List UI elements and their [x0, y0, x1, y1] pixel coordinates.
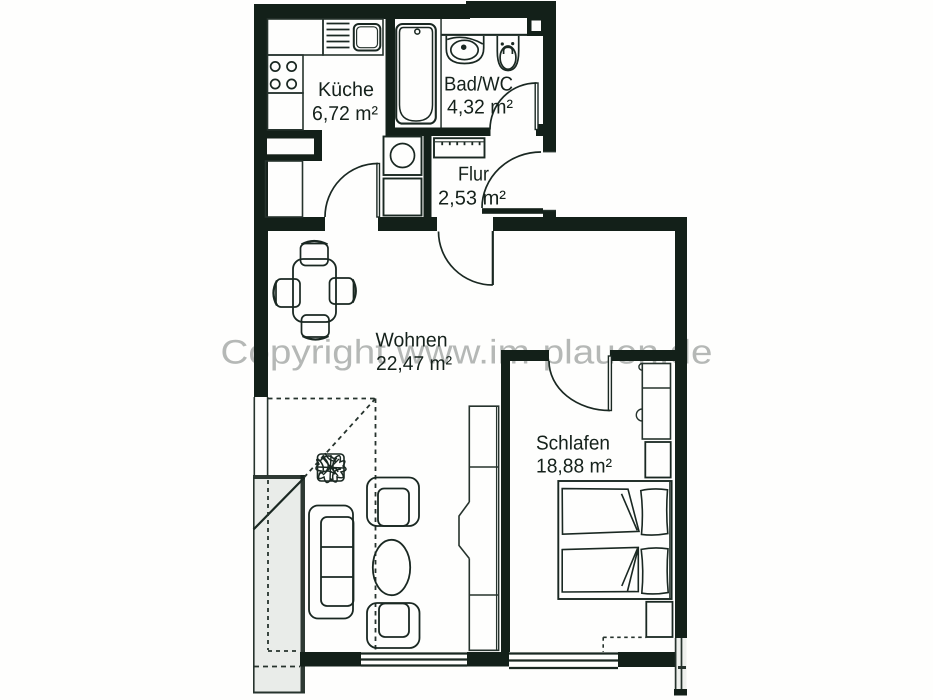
svg-text:Bad/WC: Bad/WC: [444, 74, 513, 96]
svg-text:18,88 m²: 18,88 m²: [536, 456, 612, 478]
svg-text:6,72 m²: 6,72 m²: [312, 103, 378, 125]
svg-text:Flur: Flur: [458, 164, 489, 186]
svg-text:2,53 m²: 2,53 m²: [438, 187, 506, 209]
svg-text:Küche: Küche: [318, 79, 374, 101]
svg-text:Schlafen: Schlafen: [536, 433, 610, 455]
svg-text:Wohnen: Wohnen: [376, 329, 448, 351]
svg-text:4,32 m²: 4,32 m²: [447, 97, 513, 119]
svg-text:22,47 m²: 22,47 m²: [376, 353, 452, 375]
